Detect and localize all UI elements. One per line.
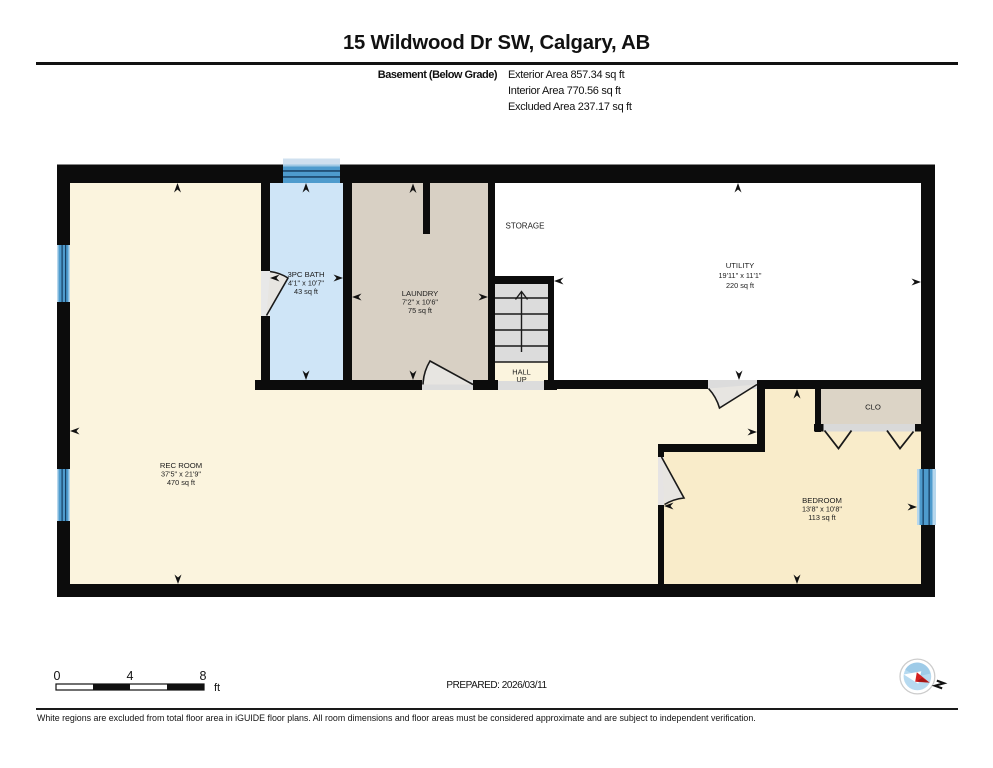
svg-text:CLO: CLO <box>865 403 881 412</box>
svg-text:19'11" x 11'1": 19'11" x 11'1" <box>719 271 762 280</box>
svg-text:470 sq ft: 470 sq ft <box>167 478 195 487</box>
svg-text:220 sq ft: 220 sq ft <box>726 281 754 290</box>
svg-text:43 sq ft: 43 sq ft <box>294 287 318 296</box>
svg-text:UP: UP <box>516 375 526 384</box>
svg-text:75 sq ft: 75 sq ft <box>408 306 432 315</box>
svg-text:STORAGE: STORAGE <box>506 222 545 231</box>
svg-text:113 sq ft: 113 sq ft <box>808 513 835 522</box>
svg-text:UTILITY: UTILITY <box>726 261 755 270</box>
